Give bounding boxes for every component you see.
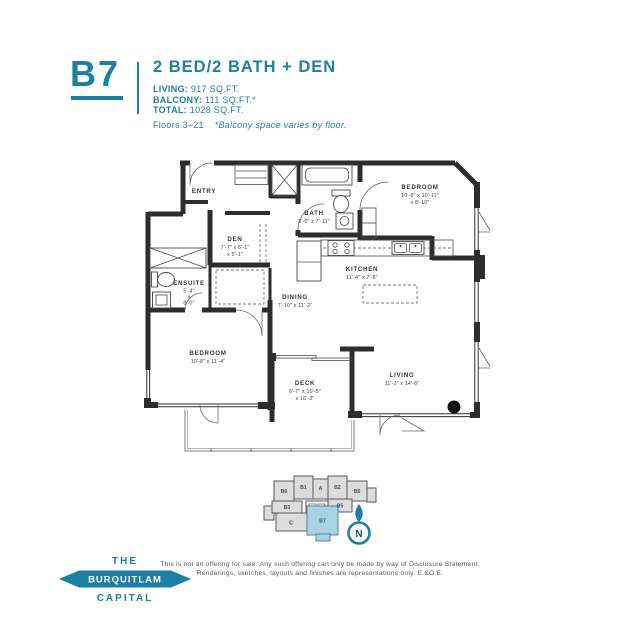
svg-text:11'-4" x 7'-8": 11'-4" x 7'-8" <box>346 275 377 281</box>
bedroom1-door <box>236 310 262 336</box>
room-dining: DINING <box>282 294 308 301</box>
washer-dryer-icon <box>272 165 297 195</box>
entry-closet <box>235 165 268 185</box>
room-bedroom-top: BEDROOM <box>401 184 438 191</box>
svg-text:B5: B5 <box>337 504 344 510</box>
plan-title: 2 BED/2 BATH + DEN <box>153 58 483 77</box>
room-deck: DECK <box>295 380 315 387</box>
toilet-icon <box>332 190 350 213</box>
svg-text:A: A <box>319 486 323 492</box>
floors-range: Floors 3–21 <box>153 120 204 130</box>
svg-text:B6: B6 <box>354 489 361 495</box>
balcony-note: *Balcony space varies by floor. <box>215 120 347 130</box>
unit-code: B7 <box>70 56 120 92</box>
disclaimer: This is not an offering for sale. Any su… <box>158 560 482 578</box>
svg-text:7'-7" x 6'-1": 7'-7" x 6'-1" <box>221 245 250 251</box>
kitchen-island <box>363 285 417 303</box>
room-bedroom-left: BEDROOM <box>189 350 226 357</box>
floor-plan-drawing: ENTRY DEN 7'-7" x 6'-1" x 5'-1" BATH 5'-… <box>140 152 490 462</box>
stat-balcony: BALCONY: 111 SQ.FT.* <box>153 95 483 106</box>
range-icon <box>328 241 354 256</box>
room-bath: BATH <box>304 210 324 217</box>
fridge-icon <box>297 241 321 281</box>
logo-line2: BURQUITLAM <box>88 575 162 586</box>
svg-text:6'-7" x 10'-5": 6'-7" x 10'-5" <box>289 389 321 395</box>
floors-row: Floors 3–21 *Balcony space varies by flo… <box>153 120 483 130</box>
svg-text:10'-6" x 10'-11": 10'-6" x 10'-11" <box>401 193 439 199</box>
svg-text:x 16'-3": x 16'-3" <box>296 396 315 402</box>
svg-text:B3: B3 <box>284 505 291 511</box>
svg-text:B1: B1 <box>300 485 307 491</box>
logo-line1: THE <box>112 556 138 567</box>
svg-text:7'-10" x 11'-2": 7'-10" x 11'-2" <box>278 303 313 309</box>
disclaimer-line1: This is not an offering for sale. Any su… <box>158 560 482 569</box>
north-arrow-icon: N <box>344 502 374 550</box>
terrace-door-bedroom <box>200 405 218 423</box>
keyplan-unit-b7-label: B7 <box>319 519 326 525</box>
svg-text:C: C <box>289 521 293 527</box>
ensuite-tub-icon <box>150 248 206 268</box>
svg-text:x 8'-10": x 8'-10" <box>411 200 430 206</box>
ensuite-toilet-icon <box>152 272 175 287</box>
svg-text:B2: B2 <box>334 485 341 491</box>
svg-text:x 5'-1": x 5'-1" <box>227 252 243 258</box>
bath-sink-icon <box>336 213 353 229</box>
svg-text:5'-0" x 7'-11": 5'-0" x 7'-11" <box>298 219 329 225</box>
unit-code-underline <box>71 96 123 100</box>
svg-text:B6: B6 <box>281 489 288 495</box>
bedroom2-door <box>360 182 388 210</box>
keyplan-stub-right <box>367 488 376 502</box>
room-living: LIVING <box>390 372 415 379</box>
room-labels: ENTRY DEN 7'-7" x 6'-1" x 5'-1" BATH 5'-… <box>173 184 439 402</box>
walk-in-closet <box>216 270 264 304</box>
kitchen-sink-icon <box>392 242 424 255</box>
header: 2 BED/2 BATH + DEN LIVING: 917 SQ.FT. BA… <box>153 58 483 130</box>
room-kitchen: KITCHEN <box>346 266 378 273</box>
svg-text:11'-2" x 14'-8": 11'-2" x 14'-8" <box>385 381 420 387</box>
stat-total: TOTAL: 1028 SQ.FT. <box>153 105 483 116</box>
svg-text:8'-0": 8'-0" <box>183 301 194 307</box>
bathtub-icon <box>302 165 352 185</box>
room-den: DEN <box>227 236 242 243</box>
svg-text:10'-8" x 11'-4": 10'-8" x 11'-4" <box>191 359 226 365</box>
stat-living: LIVING: 917 SQ.FT. <box>153 84 483 95</box>
column-dot <box>448 401 461 414</box>
header-divider <box>137 62 139 114</box>
room-ensuite: ENSUITE <box>173 280 205 287</box>
ensuite-sink-icon <box>153 292 171 308</box>
svg-text:N: N <box>355 529 362 540</box>
entry-door <box>190 163 212 185</box>
disclaimer-line2: Renderings, sketches, layouts and finish… <box>158 569 482 578</box>
logo-line3: CAPITAL <box>97 593 154 604</box>
terrace-door-living <box>380 415 400 435</box>
room-entry: ENTRY <box>192 188 216 195</box>
bath-door <box>298 204 324 230</box>
